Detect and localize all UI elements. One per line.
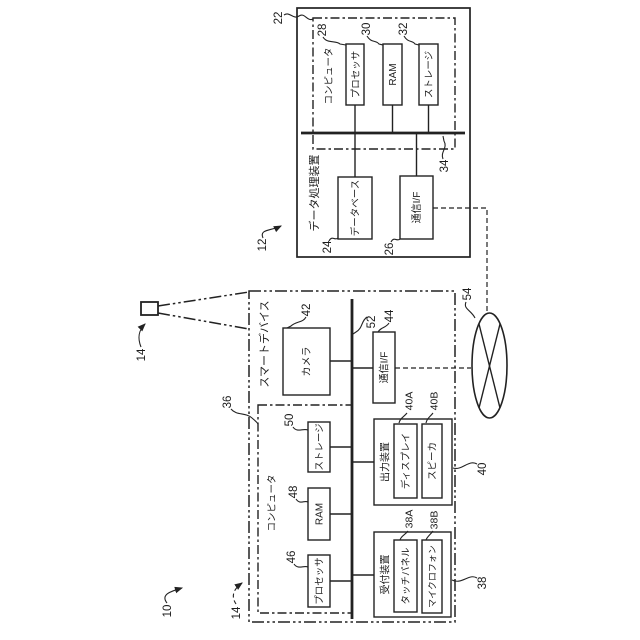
ref-38B: 38B [429, 511, 441, 530]
leader-54 [465, 302, 475, 318]
leader-42 [287, 317, 306, 328]
ref-14-icon: 14 [136, 348, 148, 361]
ref-34: 34 [439, 159, 451, 172]
ref-28: 28 [317, 24, 329, 37]
reception-device-label: 受付装置 [379, 555, 392, 595]
speaker-label: スピーカ [428, 442, 439, 480]
touch-panel-label: タッチパネル [401, 547, 412, 605]
leader-10-arrow [165, 588, 182, 603]
leader-46 [294, 564, 308, 567]
leader-34 [442, 136, 445, 159]
link-comm26-network [433, 208, 487, 313]
leader-36 [231, 409, 258, 424]
leader-28 [323, 37, 346, 45]
ref-42: 42 [301, 304, 313, 317]
leader-52 [353, 317, 367, 334]
leader-24 [329, 238, 338, 241]
data-processing-device-label: データ処理装置 [307, 155, 321, 232]
leader-44 [378, 323, 389, 332]
output-device-label: 出力装置 [379, 442, 392, 482]
ref-36: 36 [222, 396, 234, 409]
patent-diagram-canvas: データ処理装置 コンピュータ プロセッサ RAM ストレージ データベース 通信… [0, 0, 640, 640]
dpd-ram-label: RAM [388, 63, 399, 85]
smart-device-label: スマートデバイス [257, 300, 271, 387]
ref-40A: 40A [404, 392, 416, 411]
ref-38: 38 [477, 577, 489, 590]
ref-12: 12 [257, 239, 269, 252]
display-label: ディスプレイ [400, 433, 412, 489]
callout-line-bottom [158, 313, 249, 329]
ref-52: 52 [366, 316, 378, 329]
ref-10: 10 [162, 605, 174, 618]
leader-32 [404, 36, 419, 45]
leader-14-smart-device-arrow [233, 583, 242, 604]
ref-30: 30 [361, 23, 373, 36]
ref-50: 50 [284, 414, 296, 427]
ref-40: 40 [477, 463, 489, 476]
leader-26 [391, 239, 400, 242]
sd-processor-label: プロセッサ [315, 557, 326, 605]
leader-22 [284, 14, 313, 20]
ref-24: 24 [322, 240, 334, 253]
smart-device-icon [141, 302, 158, 315]
sd-storage-label: ストレージ [315, 423, 326, 470]
ref-44: 44 [384, 309, 396, 322]
leader-30 [367, 36, 383, 45]
ref-14-smart-device: 14 [231, 606, 243, 619]
dpd-comm-if-label: 通信I/F [411, 192, 423, 224]
dpd-storage-label: ストレージ [424, 51, 435, 98]
ref-22: 22 [273, 12, 285, 25]
database-label: データベース [350, 180, 362, 237]
patent-figure-page: データ処理装置 コンピュータ プロセッサ RAM ストレージ データベース 通信… [0, 0, 640, 640]
sd-comm-if-label: 通信I/F [379, 352, 391, 384]
ref-40B: 40B [429, 392, 441, 411]
dpd-processor-label: プロセッサ [351, 51, 362, 99]
callout-line-top [158, 292, 249, 306]
microphone-label: マイクロフォン [428, 545, 438, 608]
ref-46: 46 [286, 551, 298, 564]
leader-14-icon-arrow [139, 324, 145, 347]
camera-label: カメラ [301, 347, 313, 377]
leader-40 [453, 463, 477, 469]
ref-54: 54 [462, 287, 474, 300]
leader-50 [293, 427, 308, 430]
leader-12-arrow [262, 226, 281, 238]
ref-32: 32 [398, 23, 410, 36]
sd-ram-label: RAM [315, 503, 326, 525]
ref-48: 48 [288, 486, 300, 499]
sd-computer-label: コンピュータ [267, 474, 278, 531]
leader-48 [296, 499, 308, 502]
ref-38A: 38A [404, 510, 416, 529]
ref-26: 26 [384, 243, 396, 256]
dpd-computer-label: コンピュータ [324, 47, 335, 104]
